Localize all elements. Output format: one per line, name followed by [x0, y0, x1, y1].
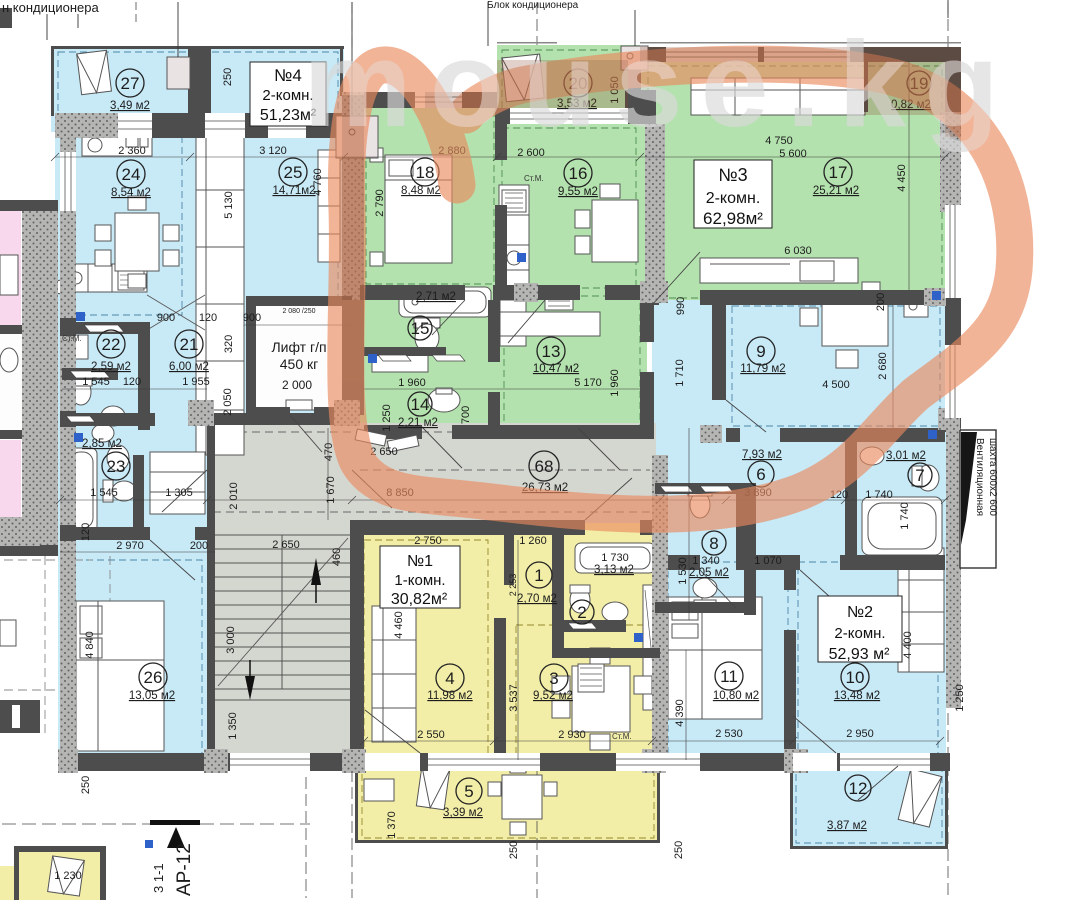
svg-text:1 740: 1 740 — [865, 489, 893, 501]
svg-text:250: 250 — [80, 776, 92, 794]
svg-text:4: 4 — [445, 669, 454, 688]
svg-text:2 750: 2 750 — [414, 535, 442, 547]
svg-text:200: 200 — [190, 540, 208, 552]
svg-text:2: 2 — [577, 603, 586, 622]
svg-text:68: 68 — [535, 457, 554, 476]
svg-text:3 120: 3 120 — [259, 145, 287, 157]
svg-text:4 760: 4 760 — [312, 168, 324, 196]
svg-text:14,71м2: 14,71м2 — [272, 185, 315, 197]
svg-text:8,54 м2: 8,54 м2 — [111, 187, 151, 199]
svg-text:№4: №4 — [274, 66, 302, 85]
svg-text:14: 14 — [411, 395, 430, 414]
svg-text:900: 900 — [157, 312, 175, 324]
svg-text:2,71 м2: 2,71 м2 — [416, 291, 456, 303]
svg-text:1 670: 1 670 — [325, 476, 337, 504]
svg-text:11,98 м2: 11,98 м2 — [427, 690, 472, 702]
svg-text:1 350: 1 350 — [227, 712, 239, 740]
svg-text:250: 250 — [222, 68, 234, 86]
svg-text:6,00 м2: 6,00 м2 — [169, 361, 209, 373]
svg-text:5 170: 5 170 — [574, 377, 602, 389]
svg-text:11: 11 — [720, 667, 738, 686]
svg-text:9,52 м2: 9,52 м2 — [533, 690, 573, 702]
svg-text:2 530: 2 530 — [715, 728, 743, 740]
svg-text:10,47 м2: 10,47 м2 — [533, 363, 579, 375]
svg-text:470: 470 — [323, 443, 335, 461]
svg-text:250: 250 — [673, 841, 685, 859]
svg-text:27: 27 — [121, 74, 140, 93]
svg-text:13,48 м2: 13,48 м2 — [834, 690, 880, 702]
svg-text:2 050: 2 050 — [222, 388, 234, 416]
svg-text:16: 16 — [569, 164, 588, 183]
svg-text:460: 460 — [331, 548, 343, 566]
svg-text:26: 26 — [144, 668, 163, 687]
svg-text:4 400: 4 400 — [902, 631, 914, 659]
svg-text:320: 320 — [223, 335, 235, 353]
svg-text:1 370: 1 370 — [386, 811, 398, 839]
svg-text:3,39 м2: 3,39 м2 — [443, 807, 483, 819]
svg-text:8,48 м2: 8,48 м2 — [401, 185, 441, 197]
svg-text:4 500: 4 500 — [822, 379, 850, 391]
svg-text:шахта 600х2 600: шахта 600х2 600 — [987, 438, 998, 516]
svg-text:2,05 м2: 2,05 м2 — [689, 567, 729, 579]
svg-text:450 кг: 450 кг — [280, 356, 318, 372]
svg-text:3: 3 — [549, 669, 558, 688]
svg-text:2 930: 2 930 — [558, 729, 586, 741]
svg-text:2 790: 2 790 — [374, 189, 386, 217]
svg-text:Вентиляционная: Вентиляционная — [974, 438, 985, 516]
svg-text:25,21 м2: 25,21 м2 — [813, 185, 859, 197]
svg-text:4 460: 4 460 — [393, 611, 405, 639]
svg-text:21: 21 — [180, 335, 199, 354]
svg-text:1 070: 1 070 — [754, 555, 782, 567]
svg-text:Ст.М.: Ст.М. — [612, 732, 632, 741]
svg-text:1 730: 1 730 — [601, 552, 629, 564]
svg-text:15: 15 — [411, 319, 430, 338]
svg-text:2,59 м2: 2,59 м2 — [91, 361, 131, 373]
svg-text:120: 120 — [80, 523, 92, 541]
svg-text:mouse.kg: mouse.kg — [303, 16, 1017, 152]
svg-text:13: 13 — [542, 342, 561, 361]
svg-text:10: 10 — [846, 668, 865, 687]
svg-text:5 130: 5 130 — [223, 191, 235, 219]
svg-text:7,93 м2: 7,93 м2 — [742, 449, 782, 461]
svg-text:3,87 м2: 3,87 м2 — [827, 820, 867, 832]
svg-text:1 545: 1 545 — [82, 376, 110, 388]
svg-text:Блок кондиционера: Блок кондиционера — [487, 0, 579, 11]
svg-text:1 960: 1 960 — [398, 377, 426, 389]
svg-text:11,79 м2: 11,79 м2 — [740, 363, 785, 375]
svg-text:2,21 м2: 2,21 м2 — [398, 417, 438, 429]
svg-text:30,82м²: 30,82м² — [391, 591, 448, 608]
svg-text:1 250: 1 250 — [381, 404, 393, 432]
svg-text:62,98м²: 62,98м² — [703, 209, 763, 228]
svg-text:4 840: 4 840 — [84, 631, 96, 659]
svg-text:1 230: 1 230 — [54, 870, 82, 882]
svg-text:2 970: 2 970 — [116, 540, 144, 552]
svg-text:2 010: 2 010 — [228, 482, 240, 510]
svg-text:8: 8 — [709, 534, 718, 553]
svg-text:2 550: 2 550 — [417, 729, 445, 741]
svg-text:7: 7 — [915, 466, 924, 485]
svg-text:2 253: 2 253 — [508, 574, 518, 597]
svg-text:22: 22 — [102, 335, 121, 354]
svg-text:10,80 м2: 10,80 м2 — [713, 690, 759, 702]
svg-text:2-комн.: 2-комн. — [706, 190, 761, 207]
svg-text:2,70 м2: 2,70 м2 — [517, 593, 557, 605]
svg-text:1: 1 — [534, 566, 543, 585]
svg-text:2 080 /250: 2 080 /250 — [282, 308, 315, 315]
svg-text:6: 6 — [756, 465, 765, 484]
svg-text:24: 24 — [122, 165, 141, 184]
svg-text:4 450: 4 450 — [896, 164, 908, 192]
svg-text:1 710: 1 710 — [674, 359, 686, 387]
svg-text:Лифт г/п: Лифт г/п — [271, 339, 326, 355]
svg-text:2,85 м2: 2,85 м2 — [82, 438, 122, 450]
svg-text:1 960: 1 960 — [609, 369, 621, 397]
svg-text:3 1-1: 3 1-1 — [151, 863, 166, 893]
svg-text:990: 990 — [675, 297, 687, 315]
svg-text:3 537: 3 537 — [508, 684, 520, 712]
svg-text:17: 17 — [829, 163, 848, 182]
svg-text:9,55 м2: 9,55 м2 — [558, 186, 598, 198]
svg-text:Ст.М.: Ст.М. — [62, 334, 82, 343]
svg-text:1 305: 1 305 — [165, 487, 193, 499]
svg-text:2 950: 2 950 — [846, 728, 874, 740]
svg-text:23: 23 — [107, 457, 126, 476]
svg-text:1 340: 1 340 — [692, 555, 720, 567]
svg-text:АР-12: АР-12 — [174, 843, 195, 896]
svg-text:3,01 м2: 3,01 м2 — [886, 450, 926, 462]
svg-text:2-комн.: 2-комн. — [834, 625, 885, 642]
svg-text:№3: №3 — [718, 165, 747, 185]
svg-text:1 260: 1 260 — [519, 535, 547, 547]
svg-text:700: 700 — [460, 406, 472, 424]
svg-text:3 000: 3 000 — [225, 626, 237, 654]
svg-text:3,49 м2: 3,49 м2 — [110, 100, 150, 112]
svg-text:900: 900 — [243, 312, 261, 324]
svg-text:12: 12 — [849, 779, 868, 798]
svg-text:1 955: 1 955 — [182, 376, 210, 388]
svg-text:Ст.М.: Ст.М. — [524, 174, 544, 183]
svg-text:2 360: 2 360 — [118, 145, 146, 157]
svg-text:120: 120 — [123, 376, 141, 388]
svg-text:2 000: 2 000 — [282, 378, 312, 392]
svg-text:52,93 м²: 52,93 м² — [829, 646, 890, 663]
svg-text:13,05 м2: 13,05 м2 — [129, 690, 175, 702]
svg-text:1 530: 1 530 — [677, 557, 689, 585]
svg-text:1 250: 1 250 — [954, 684, 966, 712]
svg-text:6 030: 6 030 — [784, 245, 812, 257]
svg-text:18: 18 — [416, 163, 435, 182]
svg-text:№1: №1 — [407, 553, 433, 570]
svg-text:5: 5 — [464, 782, 473, 801]
svg-text:3,13 м2: 3,13 м2 — [594, 564, 634, 576]
svg-text:2 650: 2 650 — [272, 539, 300, 551]
svg-text:4 390: 4 390 — [674, 699, 686, 727]
svg-text:9: 9 — [756, 342, 765, 361]
svg-text:1-комн.: 1-комн. — [394, 572, 445, 589]
svg-text:н кондиционера: н кондиционера — [2, 0, 99, 15]
svg-text:№2: №2 — [847, 604, 873, 621]
svg-text:25: 25 — [284, 163, 303, 182]
svg-text:200: 200 — [875, 293, 887, 311]
svg-text:120: 120 — [199, 312, 217, 324]
svg-text:1 740: 1 740 — [899, 502, 911, 530]
svg-text:250: 250 — [508, 841, 520, 859]
svg-text:1 545: 1 545 — [90, 487, 118, 499]
svg-text:2 680: 2 680 — [877, 352, 889, 380]
